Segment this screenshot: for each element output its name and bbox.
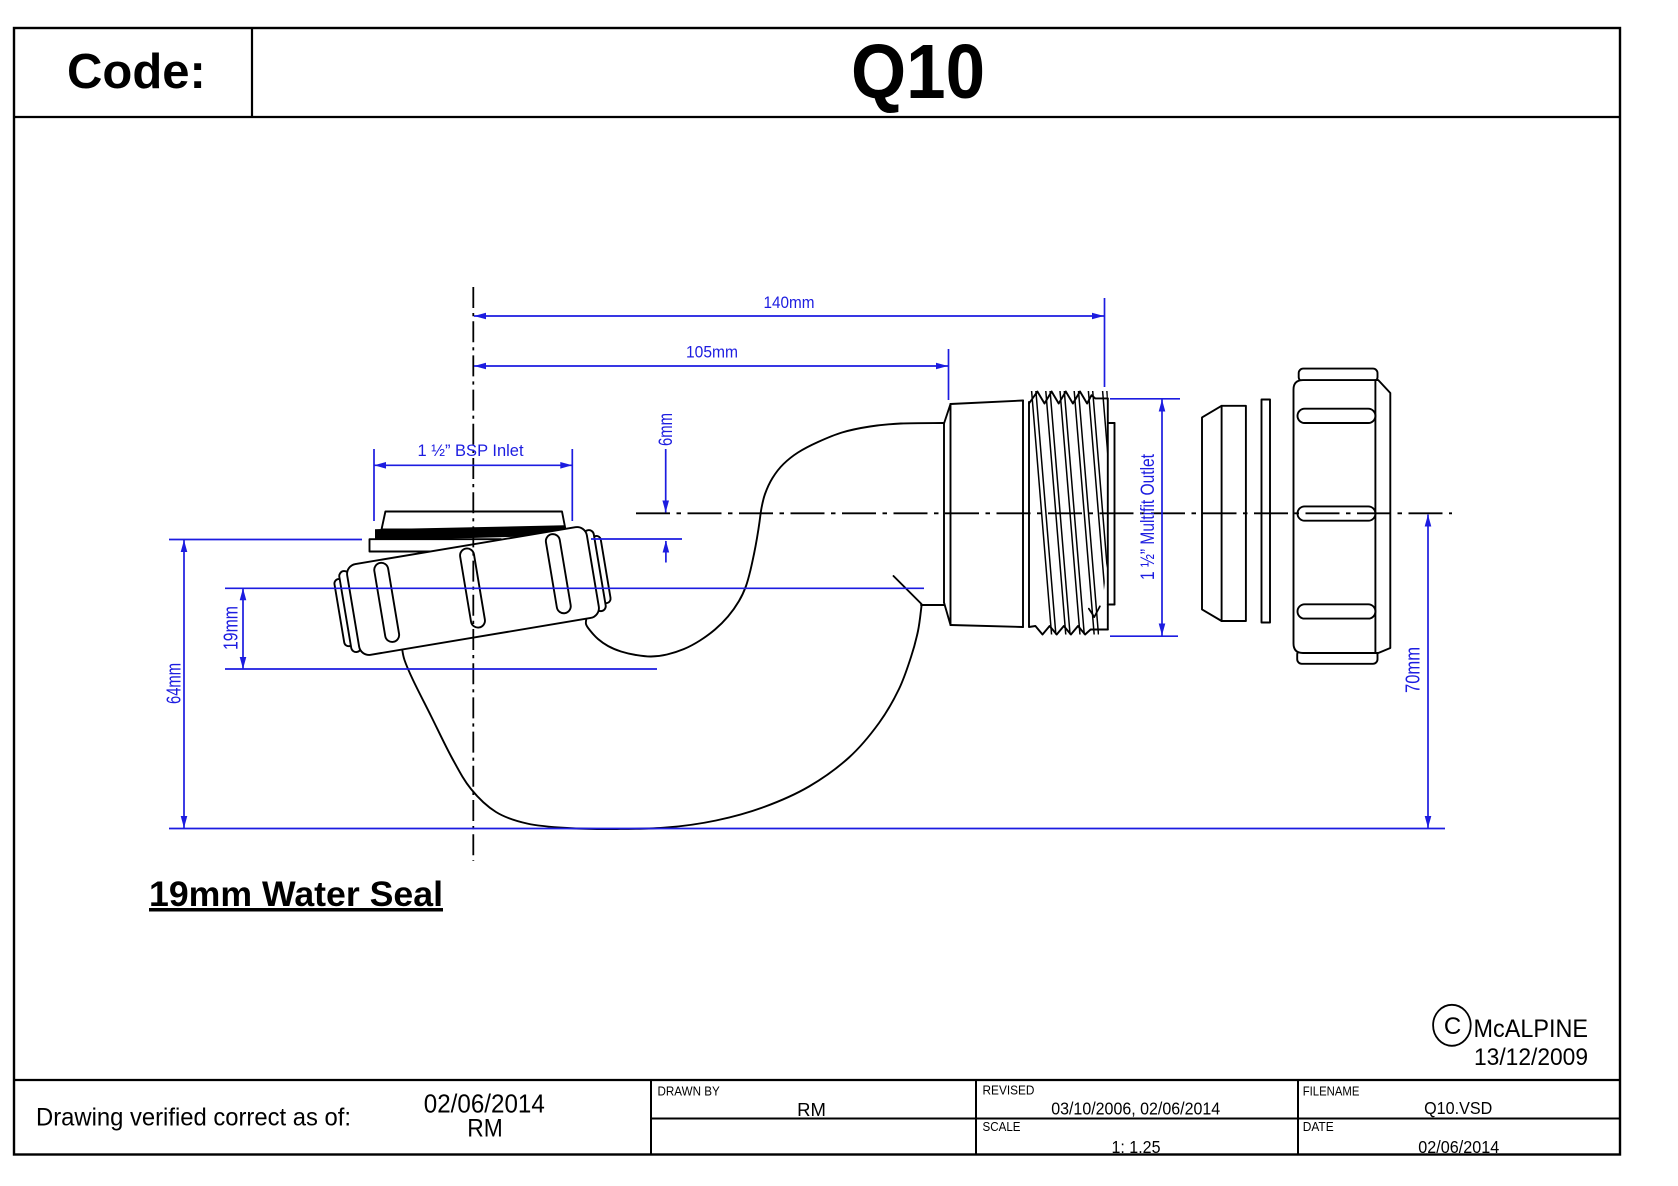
svg-text:DRAWN BY: DRAWN BY bbox=[658, 1085, 721, 1099]
svg-text:70mm: 70mm bbox=[1403, 647, 1425, 693]
svg-text:1 ½” Multifit Outlet: 1 ½” Multifit Outlet bbox=[1138, 453, 1159, 580]
svg-text:C: C bbox=[1444, 1013, 1461, 1040]
svg-text:64mm: 64mm bbox=[164, 663, 186, 704]
svg-text:McALPINE: McALPINE bbox=[1474, 1015, 1589, 1043]
svg-text:FILENAME: FILENAME bbox=[1303, 1084, 1360, 1098]
svg-text:Code:: Code: bbox=[67, 45, 206, 99]
svg-text:1 ½” BSP Inlet: 1 ½” BSP Inlet bbox=[417, 442, 524, 460]
svg-text:13/12/2009: 13/12/2009 bbox=[1474, 1044, 1588, 1071]
svg-text:1: 1.25: 1: 1.25 bbox=[1112, 1137, 1161, 1157]
svg-text:RM: RM bbox=[797, 1099, 826, 1120]
svg-text:REVISED: REVISED bbox=[983, 1084, 1035, 1098]
svg-text:03/10/2006, 02/06/2014: 03/10/2006, 02/06/2014 bbox=[1051, 1099, 1220, 1119]
svg-text:DATE: DATE bbox=[1303, 1120, 1334, 1134]
svg-text:Q10.VSD: Q10.VSD bbox=[1424, 1098, 1492, 1118]
svg-text:SCALE: SCALE bbox=[983, 1120, 1021, 1134]
svg-text:6mm: 6mm bbox=[656, 413, 677, 446]
svg-text:Drawing verified correct as of: Drawing verified correct as of: bbox=[36, 1104, 351, 1132]
svg-text:140mm: 140mm bbox=[764, 294, 815, 312]
svg-text:RM: RM bbox=[467, 1115, 503, 1143]
svg-text:19mm Water Seal: 19mm Water Seal bbox=[149, 875, 443, 914]
svg-text:02/06/2014: 02/06/2014 bbox=[1418, 1137, 1499, 1157]
svg-text:19mm: 19mm bbox=[221, 606, 243, 650]
svg-text:105mm: 105mm bbox=[686, 344, 738, 362]
svg-text:Q10: Q10 bbox=[851, 29, 985, 115]
